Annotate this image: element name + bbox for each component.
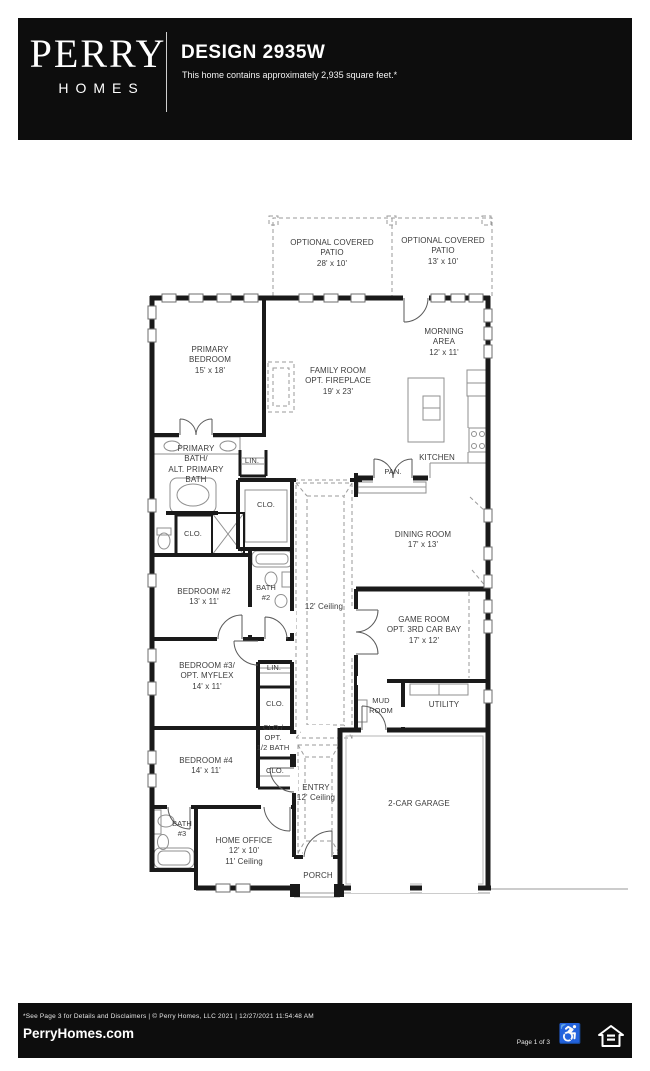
room-label-closet-primary-2: CLO. xyxy=(184,529,202,539)
porch-post-right xyxy=(334,884,344,897)
hall-ceiling-note: 12' Ceiling xyxy=(305,602,343,612)
room-label-closet-primary: CLO. xyxy=(257,500,275,510)
square-footage-subtitle: This home contains approximately 2,935 s… xyxy=(182,70,397,80)
room-label-porch: PORCH xyxy=(303,871,332,881)
room-label-bath-2: BATH #2 xyxy=(256,583,276,603)
room-label-patio-right: OPTIONAL COVERED PATIO 13' x 10' xyxy=(401,236,485,267)
logo-perry-text: PERRY xyxy=(28,34,168,74)
room-label-closet-opt-half-bath: CLO./ OPT. 1/2 BATH xyxy=(257,723,290,752)
page-indicator: Page 1 of 3 xyxy=(517,1039,550,1046)
room-label-bedroom-3: BEDROOM #3/ OPT. MYFLEX 14' x 11' xyxy=(179,661,235,692)
equal-housing-icon xyxy=(598,1024,624,1053)
room-label-dining-room: DINING ROOM 17' x 13' xyxy=(395,530,451,551)
room-label-linen-hall: LIN. xyxy=(267,663,281,673)
room-label-primary-bath: PRIMARY BATH/ ALT. PRIMARY BATH xyxy=(168,444,223,486)
room-label-pantry: PAN. xyxy=(384,467,401,477)
room-label-morning-area: MORNING AREA 12' x 11' xyxy=(424,327,463,358)
dashed-outlines xyxy=(268,216,492,853)
room-label-family-room: FAMILY ROOM OPT. FIREPLACE 19' x 23' xyxy=(305,366,371,397)
room-label-home-office: HOME OFFICE 12' x 10' 11' Ceiling xyxy=(216,836,273,867)
disclaimer-text: *See Page 3 for Details and Disclaimers … xyxy=(23,1013,314,1020)
room-label-entry: ENTRY 12' Ceiling xyxy=(297,783,335,804)
perry-homes-logo: PERRY HOMES xyxy=(28,34,168,96)
room-label-primary-bedroom: PRIMARY BEDROOM 15' x 18' xyxy=(189,345,231,376)
room-label-closet-hall: CLO. xyxy=(266,699,284,709)
logo-homes-text: HOMES xyxy=(28,80,168,96)
room-label-bedroom-2: BEDROOM #2 13' x 11' xyxy=(177,587,230,608)
website-text: PerryHomes.com xyxy=(23,1026,134,1041)
header-bar: PERRY HOMES DESIGN 2935W This home conta… xyxy=(18,18,632,140)
room-label-patio-left: OPTIONAL COVERED PATIO 28' x 10' xyxy=(290,238,374,269)
design-title: DESIGN 2935W xyxy=(181,42,325,64)
footer-bar: *See Page 3 for Details and Disclaimers … xyxy=(18,1003,632,1058)
header-divider xyxy=(166,32,167,112)
room-label-utility: UTILITY xyxy=(429,700,459,710)
room-label-bath-3: BATH #3 xyxy=(172,819,192,839)
floorplan-drawing xyxy=(0,0,650,1071)
room-label-mud-room: MUD ROOM xyxy=(369,696,393,716)
room-label-bedroom-4: BEDROOM #4 14' x 11' xyxy=(179,756,232,777)
room-label-game-room: GAME ROOM OPT. 3RD CAR BAY 17' x 12' xyxy=(387,615,461,646)
room-label-linen-primary: LIN. xyxy=(245,456,259,466)
floorplan-page: { "header": { "brand_top": "PERRY", "bra… xyxy=(0,0,650,1071)
room-label-garage: 2-CAR GARAGE xyxy=(388,799,450,809)
room-label-kitchen: KITCHEN xyxy=(419,453,455,463)
accessibility-icon: ♿ xyxy=(558,1025,582,1044)
porch-post-left xyxy=(290,884,300,897)
room-label-closet-bedroom-4: CLO. xyxy=(266,766,284,776)
